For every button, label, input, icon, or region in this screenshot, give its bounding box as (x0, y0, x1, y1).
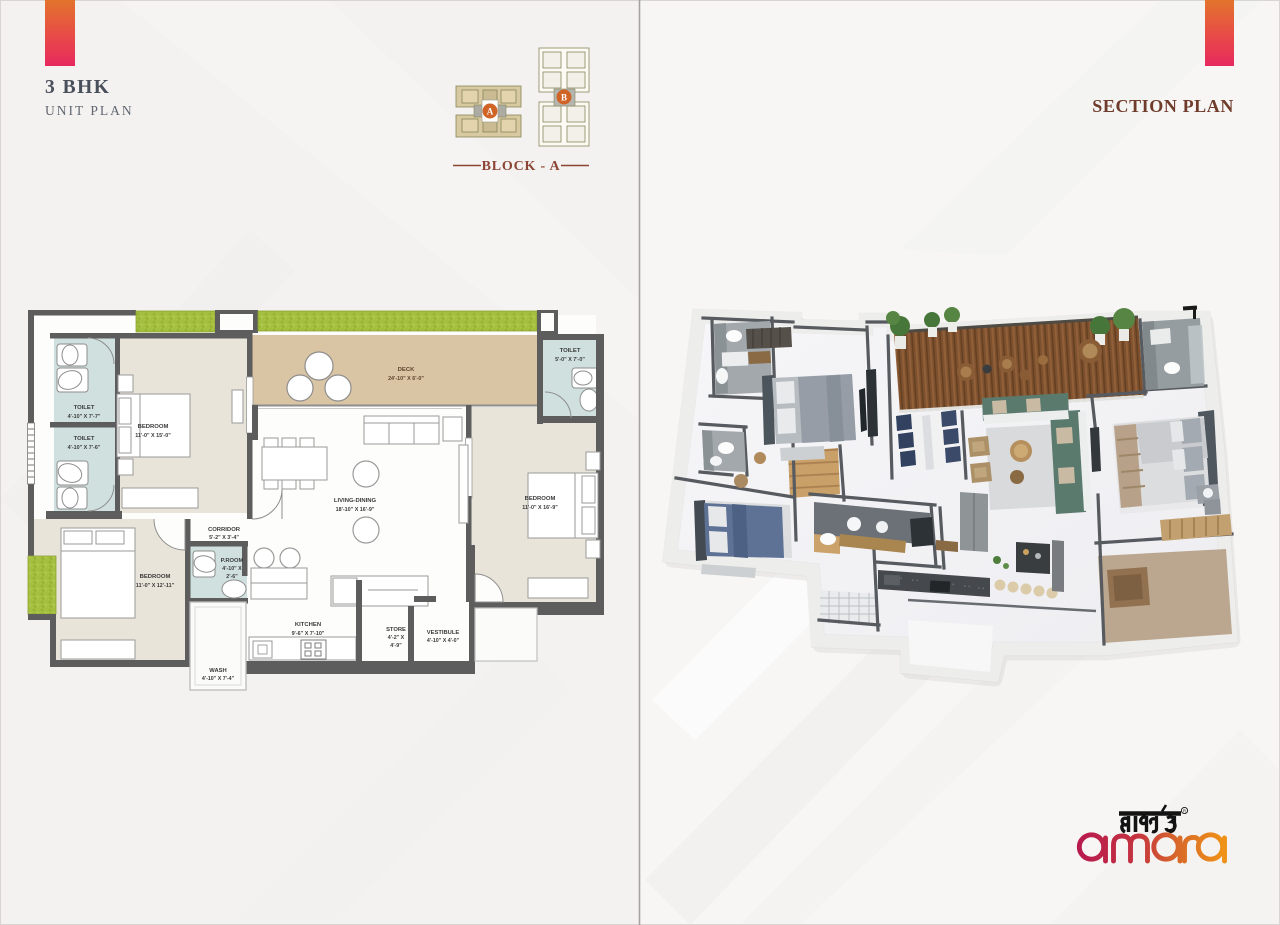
svg-text:5'-0" X 7'-0": 5'-0" X 7'-0" (555, 357, 585, 363)
svg-text:24'-10" X 6'-0": 24'-10" X 6'-0" (388, 376, 424, 382)
svg-text:KITCHEN: KITCHEN (295, 622, 321, 628)
svg-text:P.ROOM: P.ROOM (221, 558, 244, 564)
svg-text:DECK: DECK (398, 367, 415, 373)
svg-text:11'-0" X 15'-0": 11'-0" X 15'-0" (135, 433, 171, 439)
svg-text:3 BHK: 3 BHK (45, 77, 110, 98)
svg-text:11'-0" X 12'-11": 11'-0" X 12'-11" (136, 583, 175, 589)
svg-text:A: A (487, 107, 494, 117)
svg-text:CORRIDOR: CORRIDOR (208, 527, 241, 533)
svg-text:18'-10" X 16'-9": 18'-10" X 16'-9" (336, 507, 375, 513)
svg-text:4'-10" X: 4'-10" X (222, 566, 242, 572)
svg-text:4'-10" X 4'-0": 4'-10" X 4'-0" (427, 638, 460, 644)
svg-text:WASH: WASH (209, 668, 226, 674)
svg-text:4'-9": 4'-9" (390, 643, 402, 649)
svg-text:R: R (1183, 809, 1186, 814)
svg-text:9'-6" X 7'-10": 9'-6" X 7'-10" (292, 631, 325, 637)
svg-text:SECTION PLAN: SECTION PLAN (1092, 96, 1234, 116)
svg-text:BLOCK - A: BLOCK - A (482, 159, 561, 174)
svg-text:TOILET: TOILET (74, 405, 95, 411)
svg-text:LIVING-DINING: LIVING-DINING (334, 498, 377, 504)
svg-text:UNIT PLAN: UNIT PLAN (45, 103, 134, 118)
svg-text:4'-10" X 7'-4": 4'-10" X 7'-4" (202, 676, 235, 682)
svg-text:TOILET: TOILET (74, 436, 95, 442)
svg-text:2'-6": 2'-6" (226, 574, 238, 580)
svg-text:5'-2" X 3'-4": 5'-2" X 3'-4" (209, 535, 239, 541)
svg-text:B: B (561, 93, 567, 103)
svg-text:BEDROOM: BEDROOM (140, 574, 171, 580)
svg-text:BEDROOM: BEDROOM (525, 496, 556, 502)
svg-text:4'-10" X 7'-6": 4'-10" X 7'-6" (68, 445, 101, 451)
svg-text:TOILET: TOILET (560, 348, 581, 354)
svg-text:11'-0" X 16'-9": 11'-0" X 16'-9" (522, 505, 558, 511)
svg-text:4'-10" X 7'-7": 4'-10" X 7'-7" (68, 414, 101, 420)
svg-text:BEDROOM: BEDROOM (138, 424, 169, 430)
svg-text:4'-2" X: 4'-2" X (388, 635, 405, 641)
svg-text:STORE: STORE (386, 627, 406, 633)
svg-text:VESTIBULE: VESTIBULE (427, 630, 460, 636)
